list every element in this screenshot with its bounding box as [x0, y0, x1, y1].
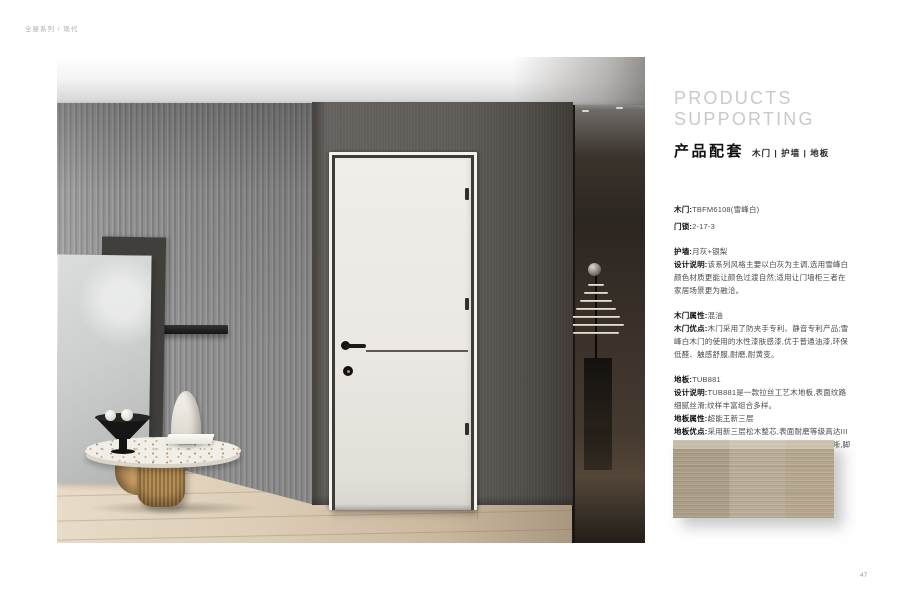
- breadcrumb: 全屋系列 / 现代: [25, 23, 78, 33]
- catalog-page: 全屋系列 / 现代: [0, 0, 900, 600]
- hallway: [572, 102, 645, 543]
- decor-ball: [105, 410, 116, 421]
- info-panel: PRODUCTS SUPPORTING 产品配套 木门 | 护墙 | 地板 木门…: [674, 88, 852, 476]
- heading-line2: SUPPORTING: [674, 109, 852, 130]
- spec-line: 护墙:月灰+银梨: [674, 245, 852, 258]
- ceiling-light: [616, 107, 623, 109]
- door-hinge: [465, 423, 469, 435]
- lamp-tier: [576, 308, 616, 311]
- lamp-tier: [588, 284, 604, 287]
- lamp-tier: [580, 300, 612, 303]
- decor-bowl: [95, 413, 155, 459]
- spec-line: 门锁:2-17-3: [674, 220, 852, 233]
- floor-plank-line: [57, 528, 607, 541]
- door-hinge: [465, 188, 469, 200]
- ceiling-light: [582, 110, 589, 112]
- floor-swatch-image: [673, 440, 834, 518]
- spec-line: 木门优点:木门采用了防夹手专利、静音专利产品;雪峰白木门的使用的水性漆肤感漆,优…: [674, 322, 852, 361]
- section-door-model: 木门:TBFM6108(雪峰白) 门锁:2-17-3: [674, 203, 852, 233]
- product-details: 木门:TBFM6108(雪峰白) 门锁:2-17-3 护墙:月灰+银梨 设计说明…: [674, 203, 852, 464]
- spec-line: 木门:TBFM6108(雪峰白): [674, 203, 852, 216]
- lamp-tier: [572, 324, 624, 327]
- door-hinge: [465, 298, 469, 310]
- section-heading-en: PRODUCTS SUPPORTING: [674, 88, 852, 130]
- door-bottom-shadow: [335, 504, 471, 510]
- section-wall-panel: 护墙:月灰+银梨 设计说明:该系列风格主要以白灰为主调,选用雪峰白颜色材质更能让…: [674, 245, 852, 297]
- floor-lamp-shade: [572, 278, 624, 334]
- spec-line: 设计说明:TUB881是一款拉丝工艺木地板,表面纹路细腻丝滑;纹样丰富组合多样。: [674, 386, 852, 412]
- decor-book: [165, 434, 214, 444]
- spec-line: 地板属性:超能王新三层: [674, 412, 852, 425]
- section-door-features: 木门属性:混油 木门优点:木门采用了防夹手专利、静音专利产品;雪峰白木门的使用的…: [674, 309, 852, 361]
- floor-lamp-sphere: [588, 263, 601, 276]
- decor-ball: [121, 409, 133, 421]
- spec-line: 地板:TUB881: [674, 373, 852, 386]
- hallway-floor-glow: [575, 432, 645, 543]
- spec-line: 木门属性:混油: [674, 309, 852, 322]
- ribbed-stool: [137, 461, 185, 507]
- lamp-tier: [584, 292, 608, 295]
- heading-line1: PRODUCTS: [674, 88, 852, 109]
- lamp-tier: [573, 332, 619, 335]
- ceiling-shadow: [512, 57, 645, 105]
- page-number: 47: [860, 572, 867, 579]
- lamp-tier: [572, 316, 620, 319]
- page-title: 产品配套: [674, 140, 744, 161]
- bowl-foot: [111, 449, 135, 454]
- door-handle: [344, 344, 366, 348]
- door-groove-line: [366, 350, 468, 352]
- page-subtitle: 木门 | 护墙 | 地板: [752, 147, 829, 159]
- interior-door: [329, 152, 477, 510]
- title-row: 产品配套 木门 | 护墙 | 地板: [674, 140, 852, 161]
- floor-plank-joint: [477, 507, 478, 519]
- spec-line: 设计说明:该系列风格主要以白灰为主调,选用雪峰白颜色材质更能让颜色过渡自然;适用…: [674, 258, 852, 297]
- door-slab: [335, 158, 471, 510]
- door-keyhole: [347, 370, 350, 373]
- room-photo: [57, 57, 645, 543]
